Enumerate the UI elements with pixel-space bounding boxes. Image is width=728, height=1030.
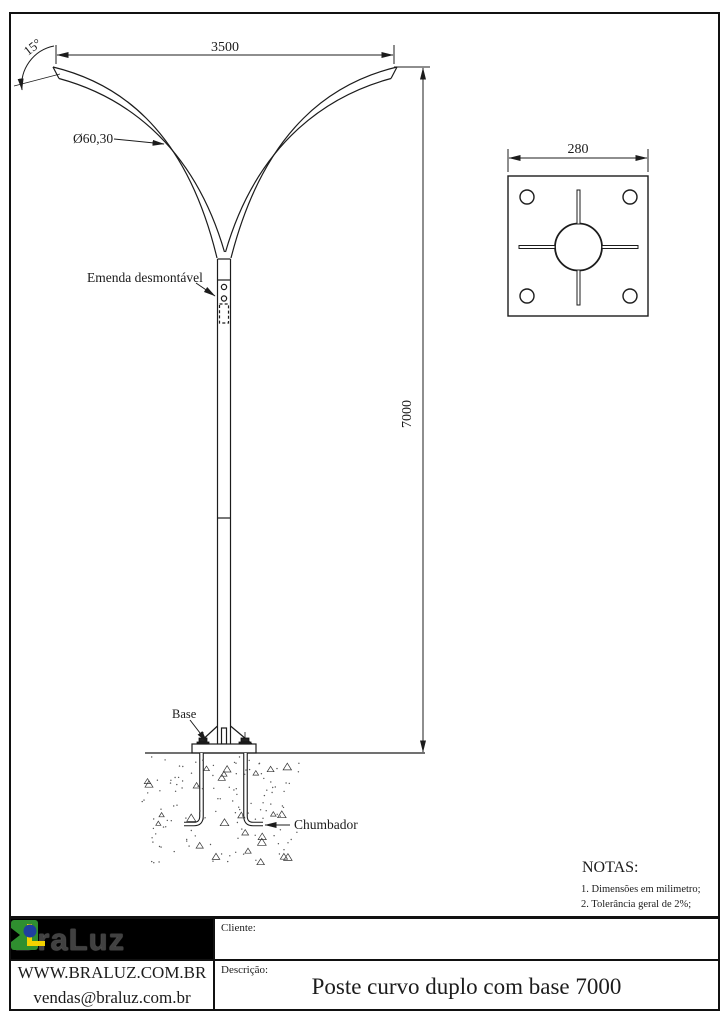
technical-drawing-sheet: 3500 7000 280 15° Ø60,30 Emenda desmontá… [0,0,728,1030]
plate-ribs [519,190,638,305]
logo-yellow-foot [27,941,45,946]
right-arm-inner-edge [226,79,392,253]
website-text: WWW.BRALUZ.COM.BR [18,961,207,986]
pole-front-view [53,67,397,744]
center-rib [222,728,227,744]
hole-bottom-left [520,289,534,303]
description-cell: Descrição: Poste curvo duplo com base 70… [213,959,718,1010]
notes-item-2: 2. Tolerância geral de 2%; [581,899,691,910]
left-anchor-core [184,753,202,824]
hole-top-right [623,190,637,204]
rib-right [602,246,638,249]
leader-base [190,720,207,742]
rib-left [519,246,555,249]
title-block: BraLuz Cliente: WWW.BRALUZ.COM.BR vendas… [9,917,720,1011]
right-arm-outer-edge [231,67,397,258]
sheet-border [10,13,719,917]
base-plate [192,744,256,753]
base-plate-top-view [508,176,648,316]
notes-title: NOTAS: [582,859,639,876]
left-washer [197,742,209,744]
right-washer [239,742,251,744]
drawing-area: 3500 7000 280 15° Ø60,30 Emenda desmontá… [0,0,728,917]
rib-top [577,190,580,224]
notes-item-1: 1. Dimensões em milimetro; [581,884,701,895]
dim-text-angle-15: 15° [21,35,45,58]
hole-top-left [520,190,534,204]
email-text: vendas@braluz.com.br [33,986,190,1011]
logo-blue-dot [24,925,37,938]
dim-text-280: 280 [568,142,589,157]
left-arm-outer-edge [53,67,217,258]
joint-sleeve-hidden [220,304,229,323]
label-base: Base [172,707,197,721]
pole-section-circle [555,224,602,271]
label-joint: Emenda desmontável [87,270,203,285]
hole-bottom-right [623,289,637,303]
joint-bolt-upper [221,284,226,289]
braluz-logo-icon [11,919,47,952]
label-anchor: Chumbador [294,817,358,832]
dim-text-3500: 3500 [211,40,239,55]
dimensions [14,45,648,825]
notes-block: NOTAS: 1. Dimensões em milimetro; 2. Tol… [581,859,701,910]
client-cell: Cliente: [213,919,718,959]
dim-text-7000: 7000 [400,400,415,428]
angle-reference-line [14,74,60,86]
contact-cell: WWW.BRALUZ.COM.BR vendas@braluz.com.br [11,959,213,1010]
rib-bottom [577,270,580,305]
logo-cell: BraLuz [11,919,213,959]
leader-diameter [114,139,164,144]
left-anchor-outline [184,753,202,824]
client-label: Cliente: [221,922,256,934]
joint-bolt-lower [221,296,226,301]
description-value: Poste curvo duplo com base 7000 [215,974,718,1000]
left-arm-inner-edge [59,79,225,253]
base-detail [142,726,426,865]
concrete-stipple [142,756,300,864]
anchor-bolts [184,753,263,824]
label-diameter: Ø60,30 [73,131,113,146]
